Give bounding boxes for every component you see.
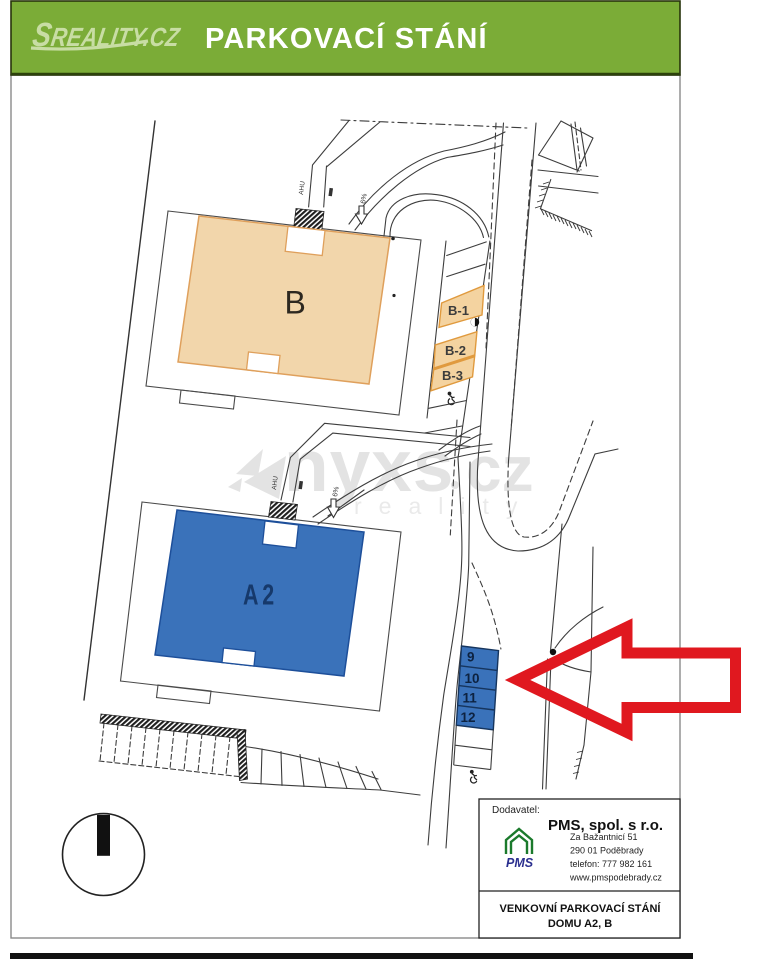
svg-text:telefon: 777 982 161: telefon: 777 982 161 <box>570 859 652 869</box>
svg-text:AHU: AHU <box>298 180 307 195</box>
svg-text:A2: A2 <box>243 579 278 611</box>
svg-text:Dodavatel:: Dodavatel: <box>492 805 540 816</box>
svg-text:B-2: B-2 <box>445 343 466 358</box>
svg-text:Za Bažantnicí 51: Za Bažantnicí 51 <box>570 832 638 842</box>
svg-text:290 01 Poděbrady: 290 01 Poděbrady <box>570 846 644 856</box>
svg-text:11: 11 <box>463 691 478 706</box>
svg-text:6%: 6% <box>360 193 369 204</box>
svg-text:reality: reality <box>354 493 534 519</box>
svg-text:PMS: PMS <box>506 856 534 870</box>
svg-text:10: 10 <box>465 671 480 686</box>
svg-text:PARKOVACÍ STÁNÍ: PARKOVACÍ STÁNÍ <box>205 21 488 55</box>
svg-text:www.pmspodebrady.cz: www.pmspodebrady.cz <box>569 873 662 883</box>
svg-text:B: B <box>285 285 306 321</box>
svg-text:VENKOVNÍ PARKOVACÍ STÁNÍ: VENKOVNÍ PARKOVACÍ STÁNÍ <box>500 902 662 915</box>
svg-text:B-1: B-1 <box>448 303 469 318</box>
svg-text:9: 9 <box>467 650 475 665</box>
svg-text:DOMU A2, B: DOMU A2, B <box>548 918 612 930</box>
svg-text:12: 12 <box>461 710 476 725</box>
svg-text:B-3: B-3 <box>442 368 463 383</box>
